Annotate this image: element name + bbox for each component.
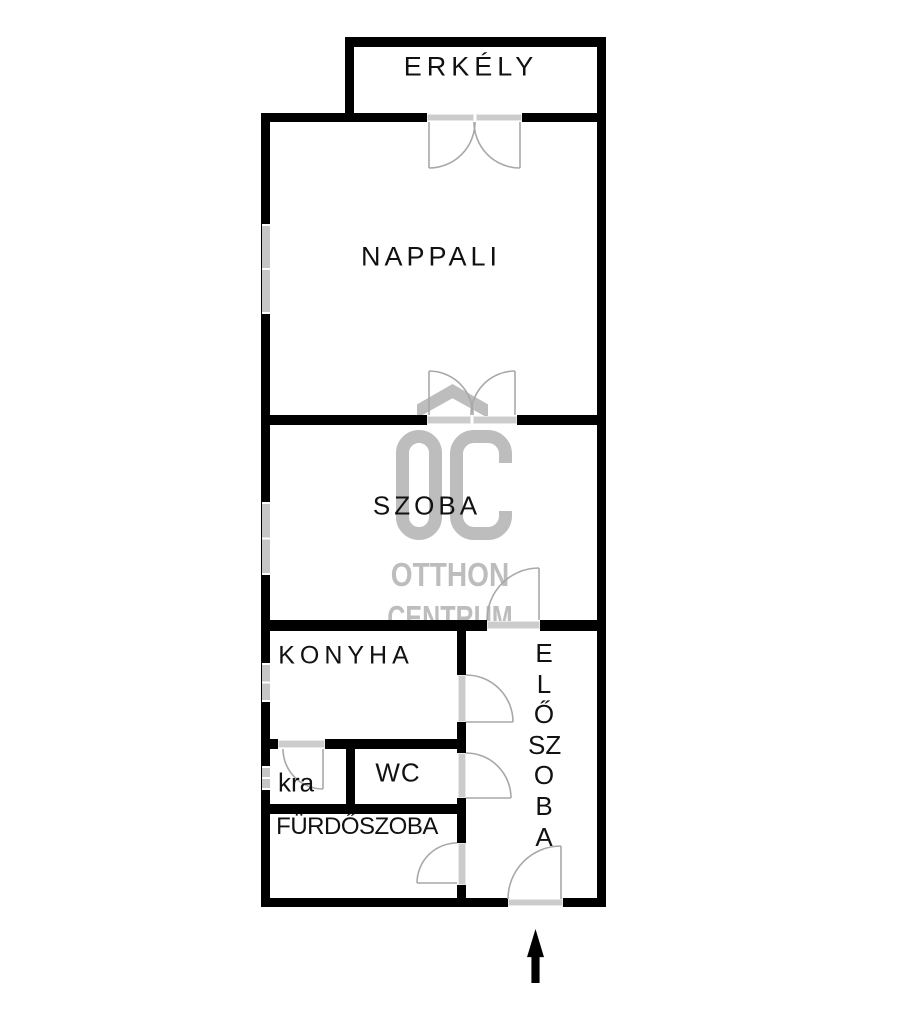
eloszoba-letter: E (528, 638, 560, 669)
entrance-arrow-icon (527, 929, 544, 983)
eloszoba-letter: O (528, 760, 560, 791)
room-label-szoba: SZOBA (373, 491, 481, 522)
eloszoba-letter: SZ (528, 730, 560, 761)
room-label-eloszoba: E L Ő SZ O B A (528, 638, 560, 852)
room-label-erkely: ERKÉLY (404, 52, 539, 83)
room-labels: ERKÉLY NAPPALI SZOBA KONYHA kra WC FÜRDŐ… (0, 0, 902, 1013)
room-label-wc: WC (375, 758, 420, 789)
room-label-kra: kra (278, 768, 314, 799)
room-label-furdoszoba: FÜRDŐSZOBA (276, 813, 438, 841)
eloszoba-letter: B (528, 791, 560, 822)
floor-plan: OC OTTHON CENTRUM (0, 0, 902, 1013)
room-label-nappali: NAPPALI (361, 242, 501, 273)
eloszoba-letter: A (528, 822, 560, 853)
eloszoba-letter: Ő (528, 699, 560, 730)
room-label-konyha: KONYHA (278, 642, 414, 671)
eloszoba-letter: L (528, 669, 560, 700)
